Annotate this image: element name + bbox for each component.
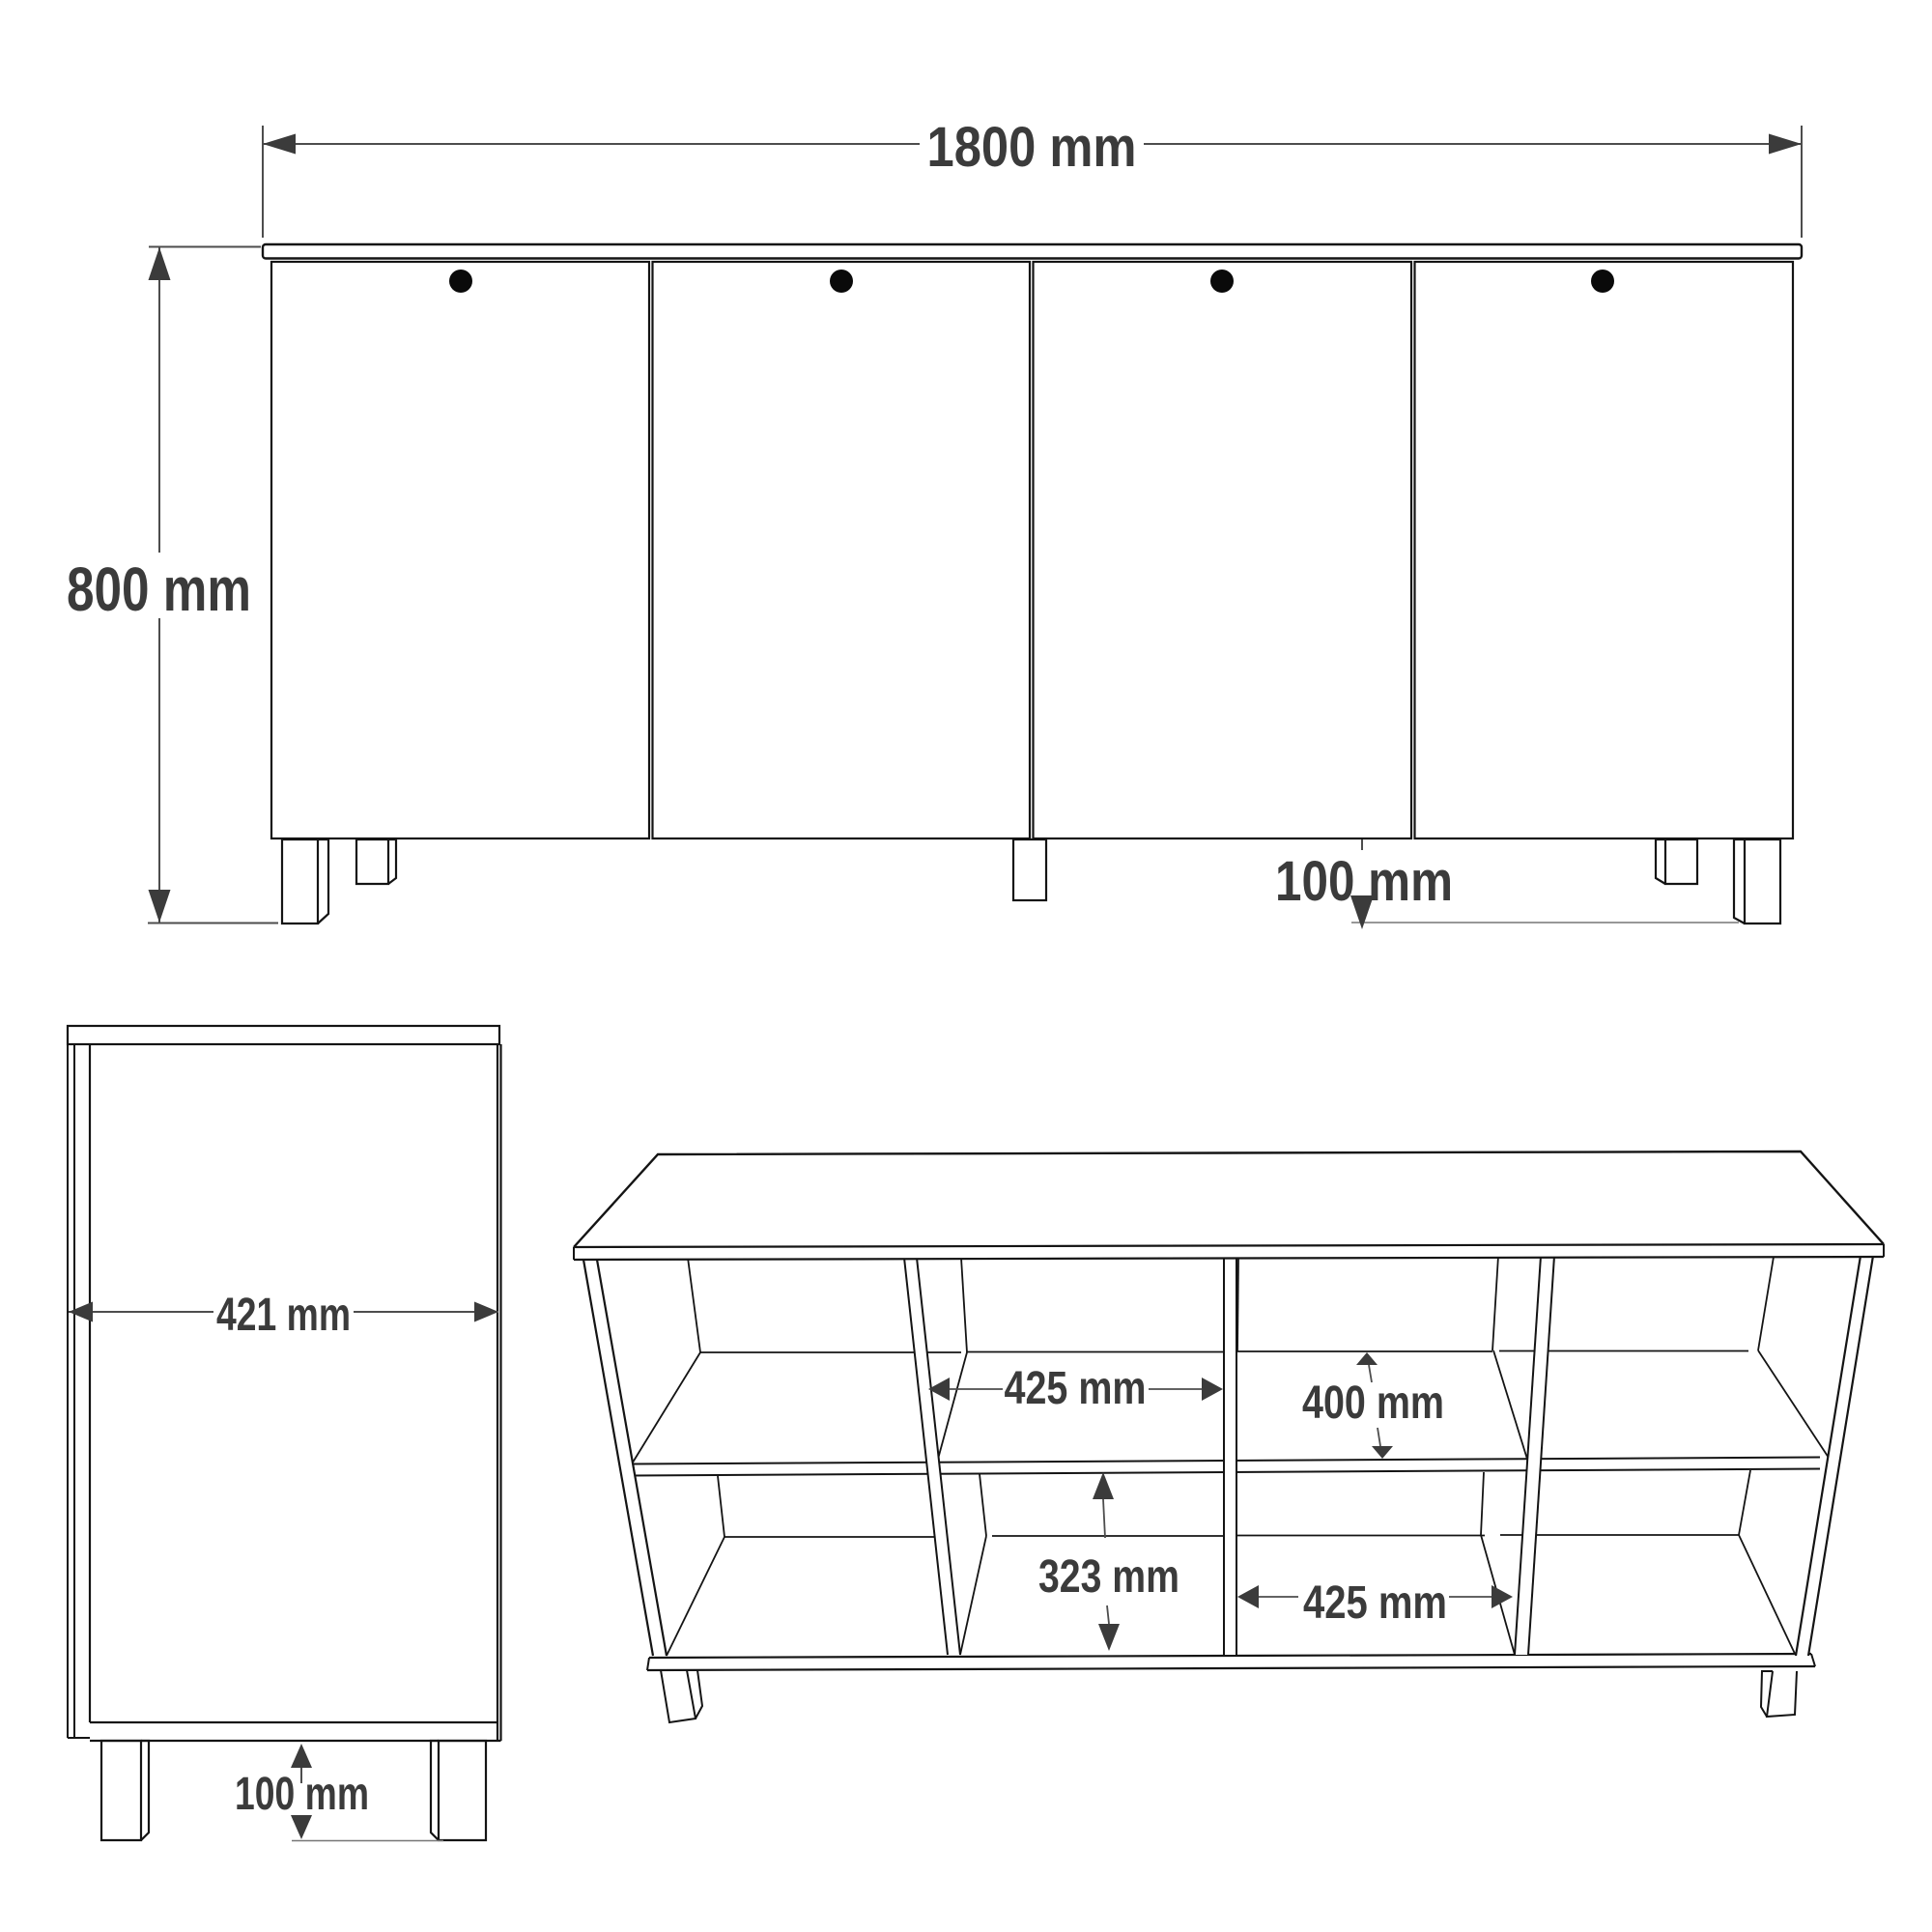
svg-text:421 mm: 421 mm xyxy=(216,1290,351,1341)
svg-text:1800 mm: 1800 mm xyxy=(927,116,1137,179)
svg-text:100 mm: 100 mm xyxy=(235,1769,369,1820)
svg-text:800 mm: 800 mm xyxy=(67,554,251,624)
svg-text:425 mm: 425 mm xyxy=(1005,1363,1147,1414)
svg-text:323 mm: 323 mm xyxy=(1038,1551,1179,1603)
svg-text:100 mm: 100 mm xyxy=(1275,850,1453,913)
svg-text:400 mm: 400 mm xyxy=(1302,1378,1444,1429)
svg-text:425 mm: 425 mm xyxy=(1303,1577,1447,1629)
